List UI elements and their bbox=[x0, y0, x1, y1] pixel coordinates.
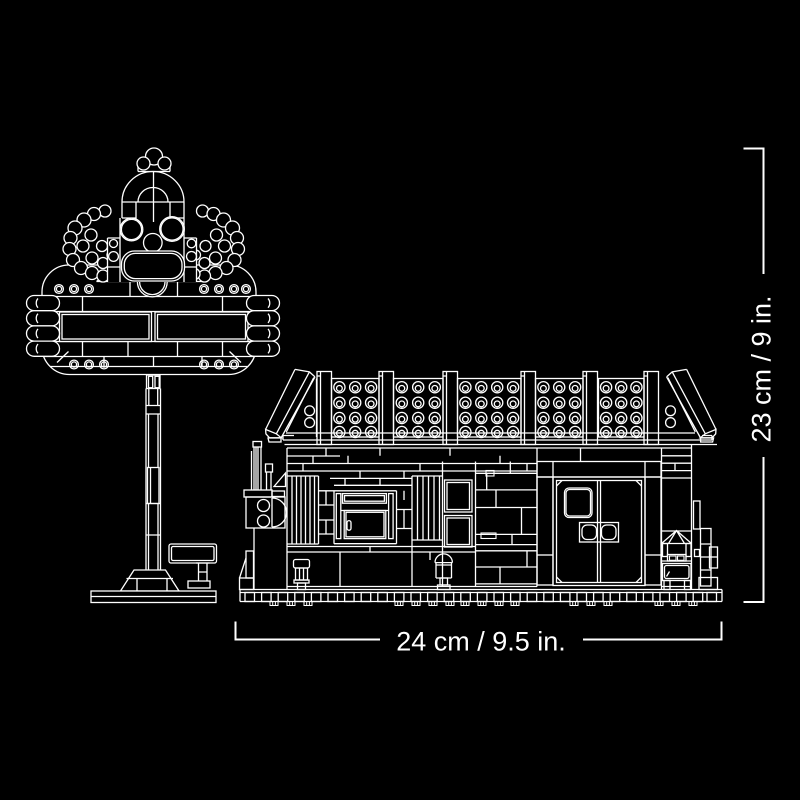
svg-text:23 cm / 9 in.: 23 cm / 9 in. bbox=[747, 295, 777, 442]
svg-text:24 cm / 9.5 in.: 24 cm / 9.5 in. bbox=[396, 627, 566, 657]
